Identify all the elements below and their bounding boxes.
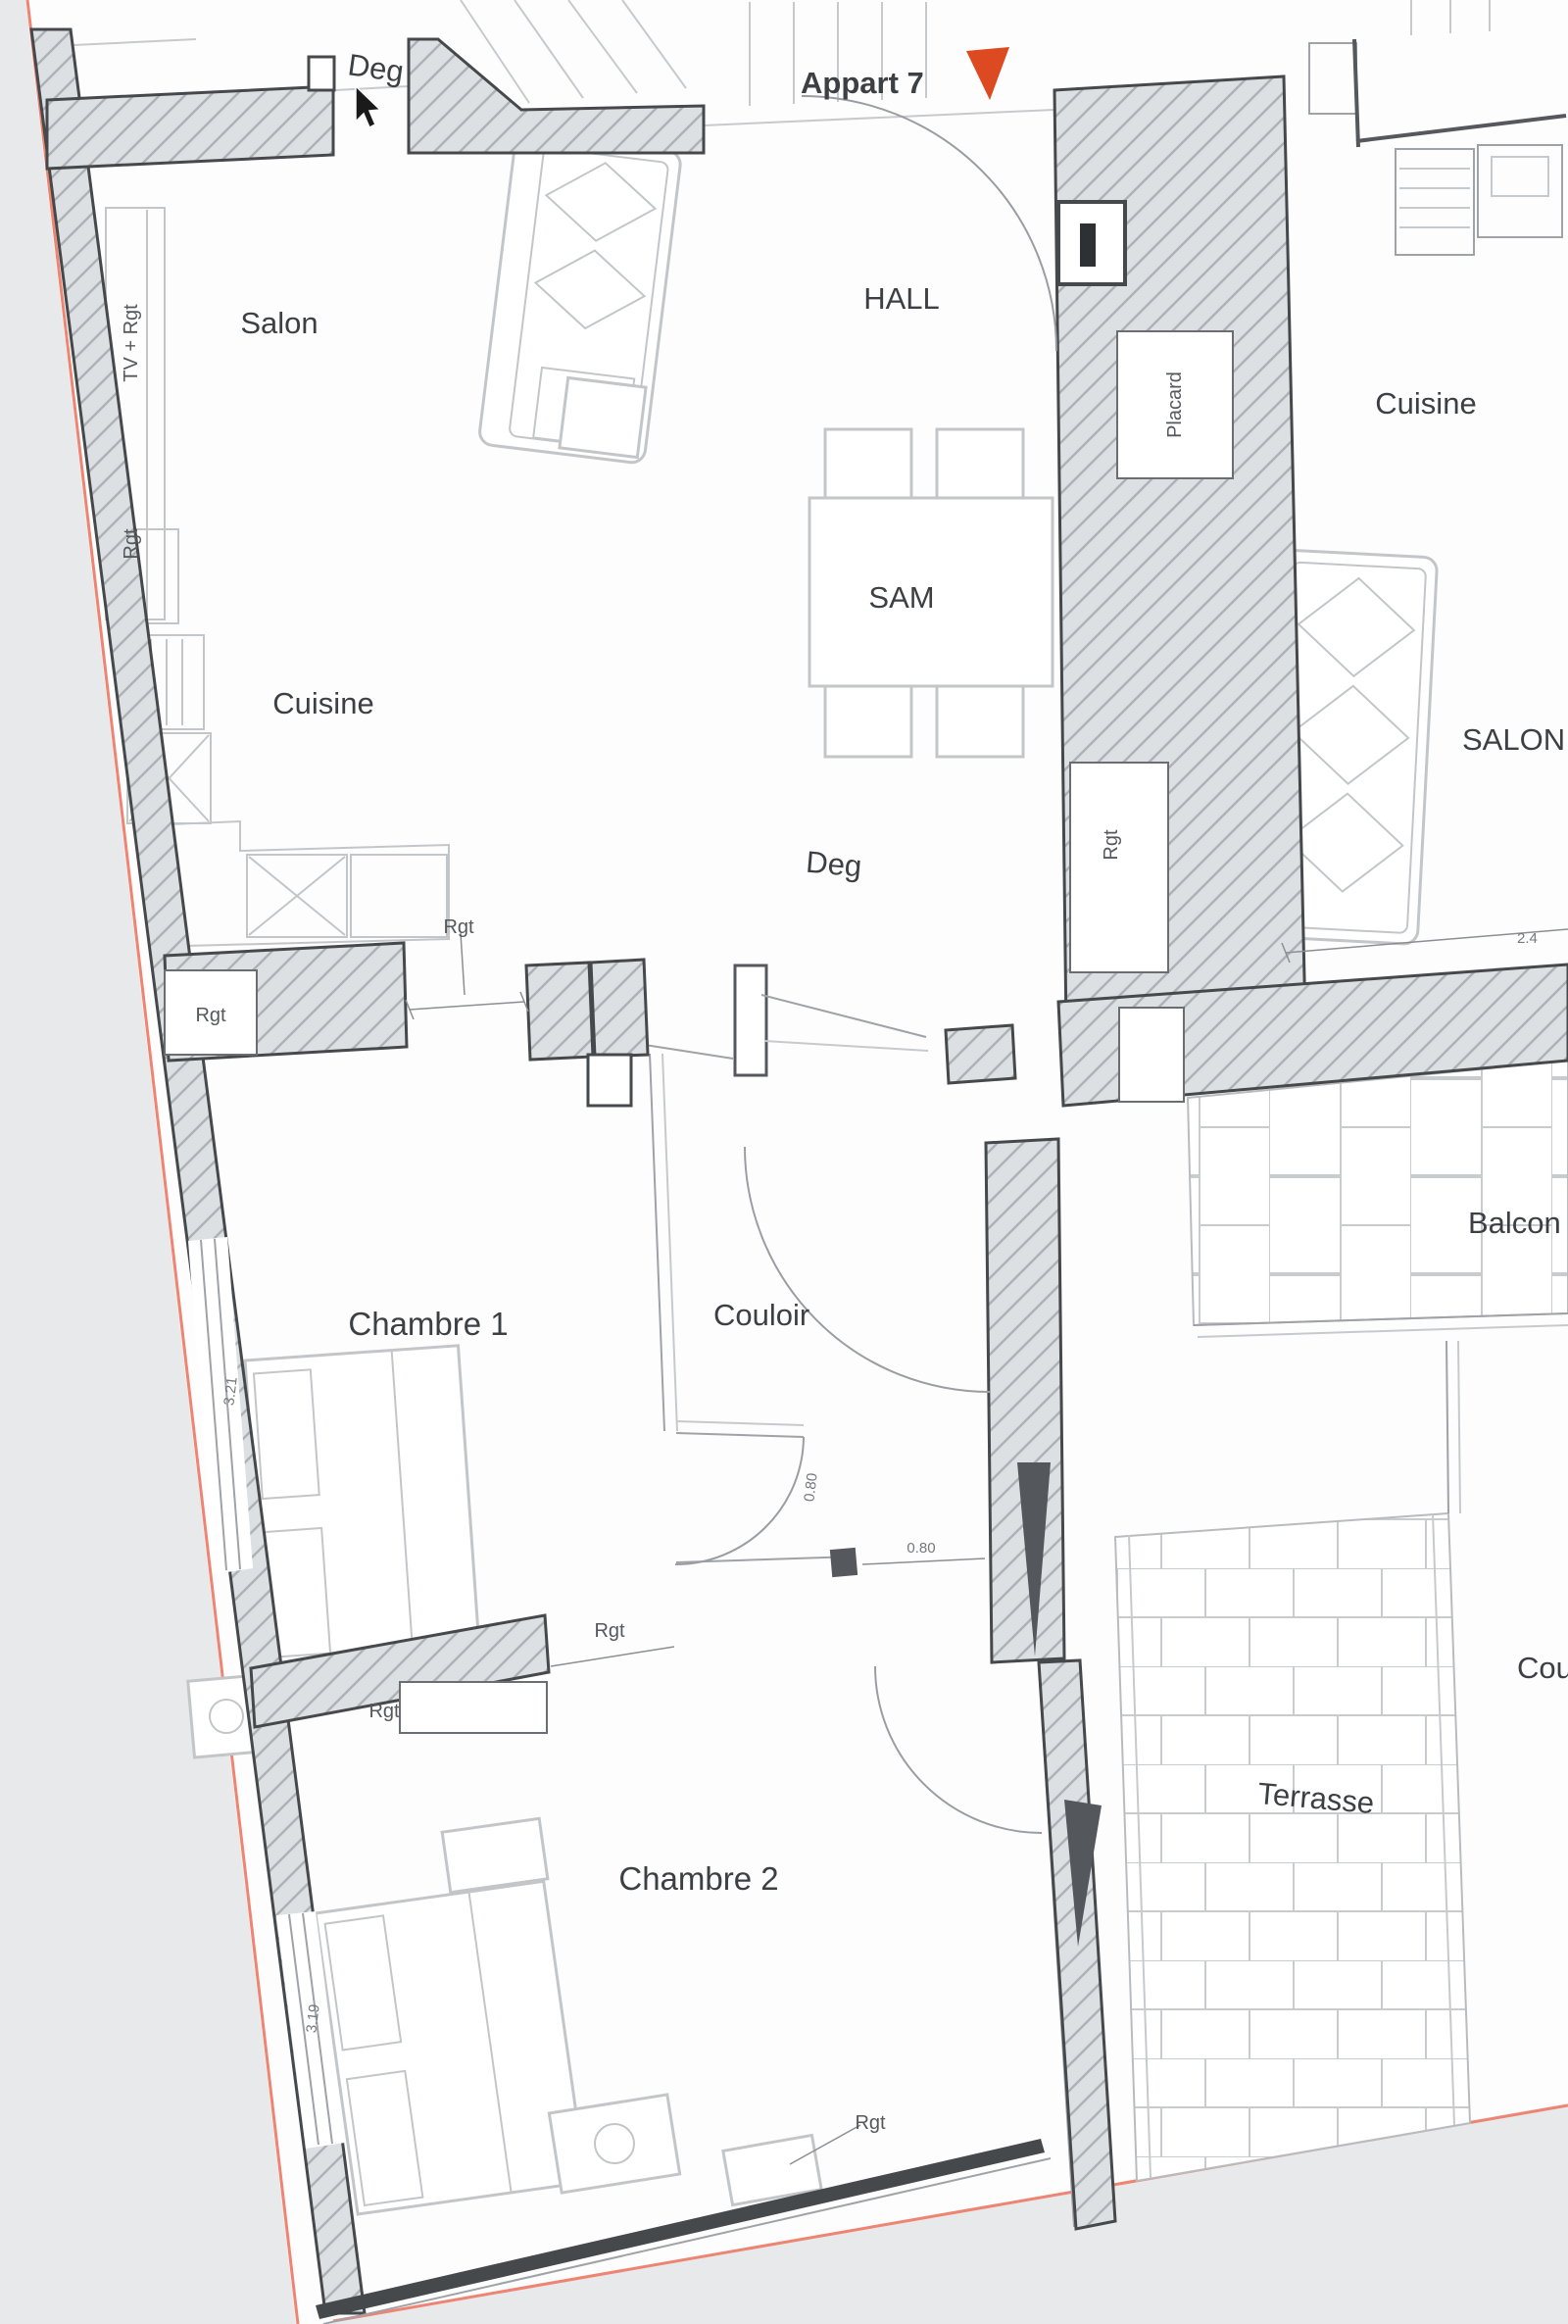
dim-080-chambre1: 0.80 [801,1472,820,1503]
label-rgt-counter: Rgt [121,528,142,560]
bed-chambre2 [316,1881,586,2214]
floorplan-viewport: Deg Appart 7 Salon HALL Cuisine SAM Cuis… [0,0,1568,2324]
label-rgt-kitchen-door: Rgt [443,916,474,938]
wall-chambre2-right [1039,1660,1115,2229]
neighbour-kitchen-counter [1309,0,1566,255]
label-deg-top: Deg [346,47,406,89]
salon-side-table [560,377,646,457]
mouse-cursor-icon [356,86,380,127]
label-rgt-deg-niche: Rgt [1101,829,1122,861]
deg-rgt-niche [1070,763,1168,972]
wall-pillar-deg [946,1025,1015,1083]
label-salon-right: SALON [1462,722,1565,757]
dim-321-chambre1: 3.21 [220,1376,240,1407]
label-cour: Cour [1517,1651,1568,1685]
label-rgt-divider-bottom: Rgt [368,1701,400,1722]
dim-319-chambre2: 3.19 [303,2003,322,2034]
wall-pillar-kitchen-b [591,960,648,1057]
wall-staircase-wedge [409,39,704,153]
door-arc-chambre2 [875,1666,1042,1833]
balcony-area [1188,1061,1568,1337]
nightstand-chambre2 [442,1818,548,1892]
label-rgt-divider-top: Rgt [594,1620,625,1642]
label-sam: SAM [868,580,934,615]
label-hall: HALL [863,281,940,316]
label-cuisine-left: Cuisine [272,686,373,720]
dresser-chambre2 [549,2095,679,2193]
label-appart7: Appart 7 [801,66,924,100]
balcony-door-gap [1119,1008,1184,1102]
label-couloir: Couloir [713,1298,809,1332]
terrace-area [1115,1341,1470,2181]
divider-shelf-niche [400,1682,547,1733]
dim-24-right: 2.4 [1517,930,1538,947]
electric-box [1058,202,1125,284]
label-tv-rgt: TV + Rgt [121,304,142,382]
floorplan-drawing: Deg Appart 7 Salon HALL Cuisine SAM Cuis… [0,0,1568,2324]
wall-couloir-right [986,1139,1064,1662]
label-chambre1: Chambre 1 [348,1306,508,1342]
label-rgt-chambre2: Rgt [855,2112,886,2134]
door-arc-chambre1 [675,1437,804,1564]
door-arc-couloir-top [745,1147,990,1392]
dim-080-couloir: 0.80 [906,1540,935,1557]
wall-top-salon [47,86,333,169]
label-cuisine-right: Cuisine [1375,386,1476,420]
wall-pillar-kitchen-a [526,963,593,1060]
kitchen-return [588,1055,631,1106]
label-placard: Placard [1164,371,1186,438]
bed-chambre1 [245,1346,480,1671]
appart7-marker-icon [966,47,1009,100]
label-rgt-kitchen-niche: Rgt [195,1005,226,1026]
label-salon: Salon [240,306,318,340]
label-chambre2: Chambre 2 [618,1860,778,1897]
label-balcon: Balcon [1468,1206,1561,1240]
door-jamb-deg [309,57,334,90]
label-deg-center: Deg [805,845,863,884]
